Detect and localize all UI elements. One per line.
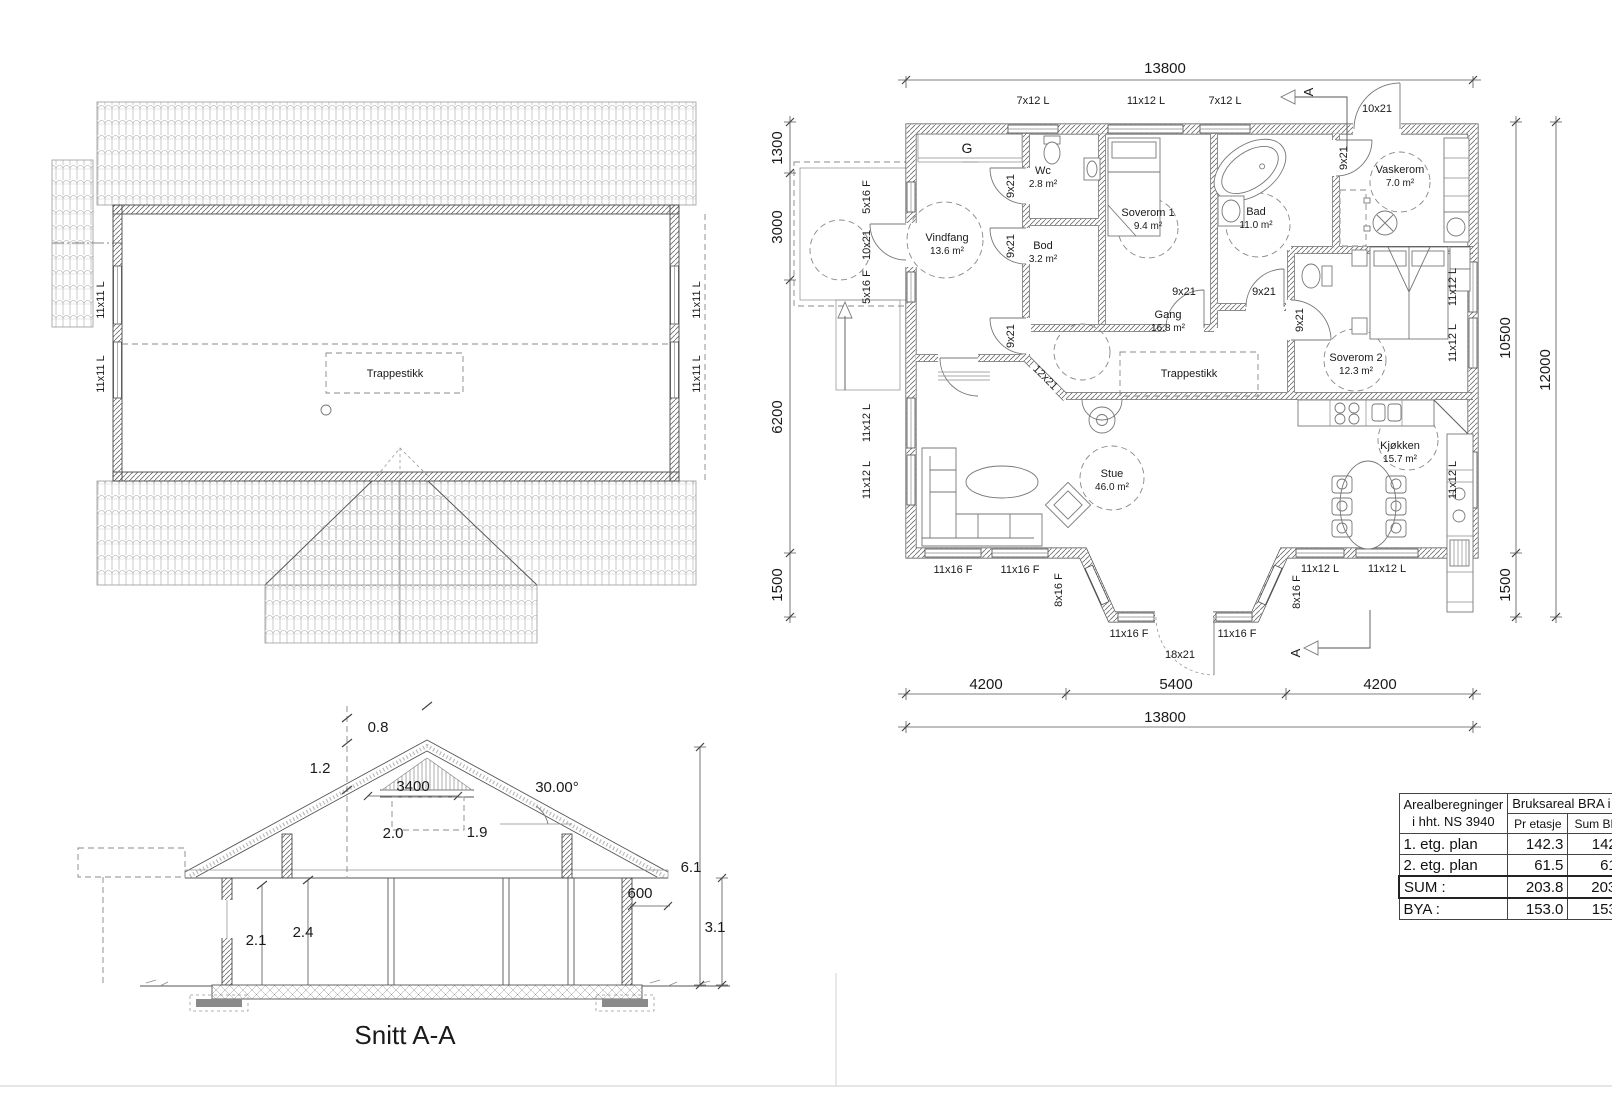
rp-win-11x11-la: 11x11 L [95,281,107,319]
knee-wall-left [282,834,292,878]
fp-door-9x21-g: 9x21 [1252,286,1276,298]
plan-canvas: 1380013003000620015001050012000150042005… [0,0,1612,1103]
chimney-pipe [321,405,331,415]
fp-win-7x12-a: 7x12 L [1016,95,1049,107]
fp-win-5x16-a: 5x16 F [861,180,873,214]
kitchen-fixtures [1298,400,1473,612]
fp-dim-13800-top: 13800 [1144,60,1186,77]
section-walls [221,878,632,985]
fp-door-9x21-e: 9x21 [1294,308,1306,332]
wood-stove [1082,400,1122,433]
fp-dim-1300: 1300 [769,131,786,164]
drawing-sheet: 1380013003000620015001050012000150042005… [0,0,1612,1103]
fp-dim-13800-bottom: 13800 [1144,709,1186,726]
fp-door-9x21-a: 9x21 [1005,174,1017,198]
fp-section-a-top: A [1301,87,1316,96]
fp-win-11x12-ra: 11x12 L [1447,268,1459,306]
roof-wall-bottom [113,472,679,481]
roof-wall-top [113,205,679,214]
knee-wall-right [562,834,572,878]
rp-win-11x11-rb: 11x11 L [691,355,703,393]
sc-dim-6-1: 6.1 [681,859,702,876]
table-row-2etg: 2. etg. plan 61.5 61.5 [1399,855,1612,877]
porch-outline-dashed [78,848,185,877]
table-subheader-sum-bra: Sum BRA [1568,814,1612,834]
fp-room-soverom2: Soverom 2 [1329,352,1382,364]
fp-area-bad: 11.0 m² [1239,220,1273,231]
sc-dim-1-2: 1.2 [310,760,331,777]
fp-label-trappestikk: Trappestikk [1161,368,1218,380]
laundry-fixtures [1340,138,1469,246]
fp-door-9x21-b: 9x21 [1005,234,1017,258]
wc-fixtures [1044,136,1100,180]
sc-dim-3400: 3400 [396,778,429,795]
roof-tile-band-top [97,102,696,205]
fp-area-bod: 3.2 m² [1029,254,1058,265]
fp-area-gang: 16.8 m² [1151,323,1186,334]
rp-win-11x11-lb: 11x11 L [95,355,107,393]
sc-dim-2-0: 2.0 [383,825,404,842]
fp-area-vaskerom: 7.0 m² [1386,178,1415,189]
fp-win-11x16-a: 11x16 F [934,564,973,576]
fp-dim-5400: 5400 [1159,676,1192,693]
footing-right [602,999,648,1007]
floor-plan [784,76,1562,733]
fp-win-5x16-b: 5x16 F [861,270,873,304]
area-calculation-table: Arealberegninger i hht. NS 3940 Bruksare… [1398,793,1612,920]
fp-room-wc: Wc [1035,165,1051,177]
fp-door-10x21-top: 10x21 [1362,103,1392,115]
fp-dim-12000: 12000 [1537,349,1554,391]
fp-label-g: G [962,140,973,156]
fp-dim-6200: 6200 [769,400,786,433]
fp-door-12x21: 12x21 [1030,363,1060,393]
fp-door-9x21-f: 9x21 [1172,286,1196,298]
table-header-bra: Bruksareal BRA i m² [1508,794,1612,814]
entry-porch [794,162,912,390]
fp-win-8x16-r: 8x16 F [1291,575,1303,609]
fp-area-wc: 2.8 m² [1029,179,1058,190]
fp-dim-4200-left: 4200 [969,676,1002,693]
table-header-areal: Arealberegninger i hht. NS 3940 [1399,794,1508,834]
bathroom-fixtures [1203,127,1332,288]
fp-area-kjokken: 15.7 m² [1383,454,1418,465]
fp-door-18x21: 18x21 [1165,649,1195,661]
fp-door-9x21-d: 9x21 [1338,146,1350,170]
roof-entry-extension [52,160,93,327]
fp-dim-4200-right: 4200 [1363,676,1396,693]
table-subheader-pr-etasje: Pr etasje [1508,814,1568,834]
fp-area-stue: 46.0 m² [1095,482,1130,493]
fp-room-stue: Stue [1101,468,1124,480]
fp-room-bad: Bad [1246,206,1266,218]
sc-dim-2-1: 2.1 [246,932,267,949]
fp-win-8x16-l: 8x16 F [1053,573,1065,607]
section-dims [257,702,728,989]
fp-door-10x21-left: 10x21 [861,230,873,260]
floor-slab [212,985,642,999]
fp-win-7x12-b: 7x12 L [1208,95,1241,107]
sc-dim-2-4: 2.4 [293,924,314,941]
fp-win-11x12-rc: 11x12 L [1447,461,1459,499]
fp-room-vindfang: Vindfang [925,232,968,244]
table-row-sum: SUM : 203.8 203.8 [1399,876,1612,898]
fp-area-soverom2: 12.3 m² [1339,366,1374,377]
entry-arrow [838,302,852,318]
sc-dim-0-8: 0.8 [368,719,389,736]
fp-win-11x12-ba: 11x12 L [1301,563,1339,575]
rp-win-11x11-ra: 11x11 L [691,281,703,319]
fp-door-9x21-c: 9x21 [1005,324,1017,348]
fp-dim-1500-right: 1500 [1497,568,1514,601]
footing-left [196,999,242,1007]
fp-win-11x12-bb: 11x12 L [1368,563,1406,575]
rp-label-trappestikk: Trappestikk [367,368,424,380]
fp-win-11x16-d: 11x16 F [1218,628,1257,640]
fp-room-vaskerom: Vaskerom [1376,164,1425,176]
table-row-bya: BYA : 153.0 153.0 [1399,898,1612,920]
table-row-1etg: 1. etg. plan 142.3 142.3 [1399,834,1612,855]
fp-win-11x12-top: 11x12 L [1127,95,1165,107]
fp-room-soverom1: Soverom 1 [1121,207,1174,219]
sc-dim-600: 600 [627,885,652,902]
fp-win-11x12-lb: 11x12 L [861,461,873,499]
sc-title: Snitt A-A [354,1020,456,1050]
fp-area-vindfang: 13.6 m² [930,246,965,257]
fp-win-11x12-rb: 11x12 L [1447,324,1459,362]
fp-win-11x16-b: 11x16 F [1001,564,1040,576]
sc-angle: 30.00° [535,779,579,796]
fp-dim-1500-left: 1500 [769,568,786,601]
sc-dim-1-9: 1.9 [467,824,488,841]
fp-dim-10500: 10500 [1497,317,1514,359]
section-drawing [78,702,730,1011]
fp-room-bod: Bod [1033,240,1053,252]
fp-area-soverom1: 9.4 m² [1134,221,1163,232]
fp-room-gang: Gang [1155,309,1182,321]
fp-dim-3000: 3000 [769,210,786,243]
livingroom-furniture [922,448,1091,546]
fp-room-kjokken: Kjøkken [1380,440,1420,452]
fp-win-11x12-la: 11x12 L [861,404,873,442]
fp-section-a-bottom: A [1288,648,1303,657]
sc-dim-3-1: 3.1 [705,919,726,936]
fp-win-11x16-c: 11x16 F [1110,628,1149,640]
